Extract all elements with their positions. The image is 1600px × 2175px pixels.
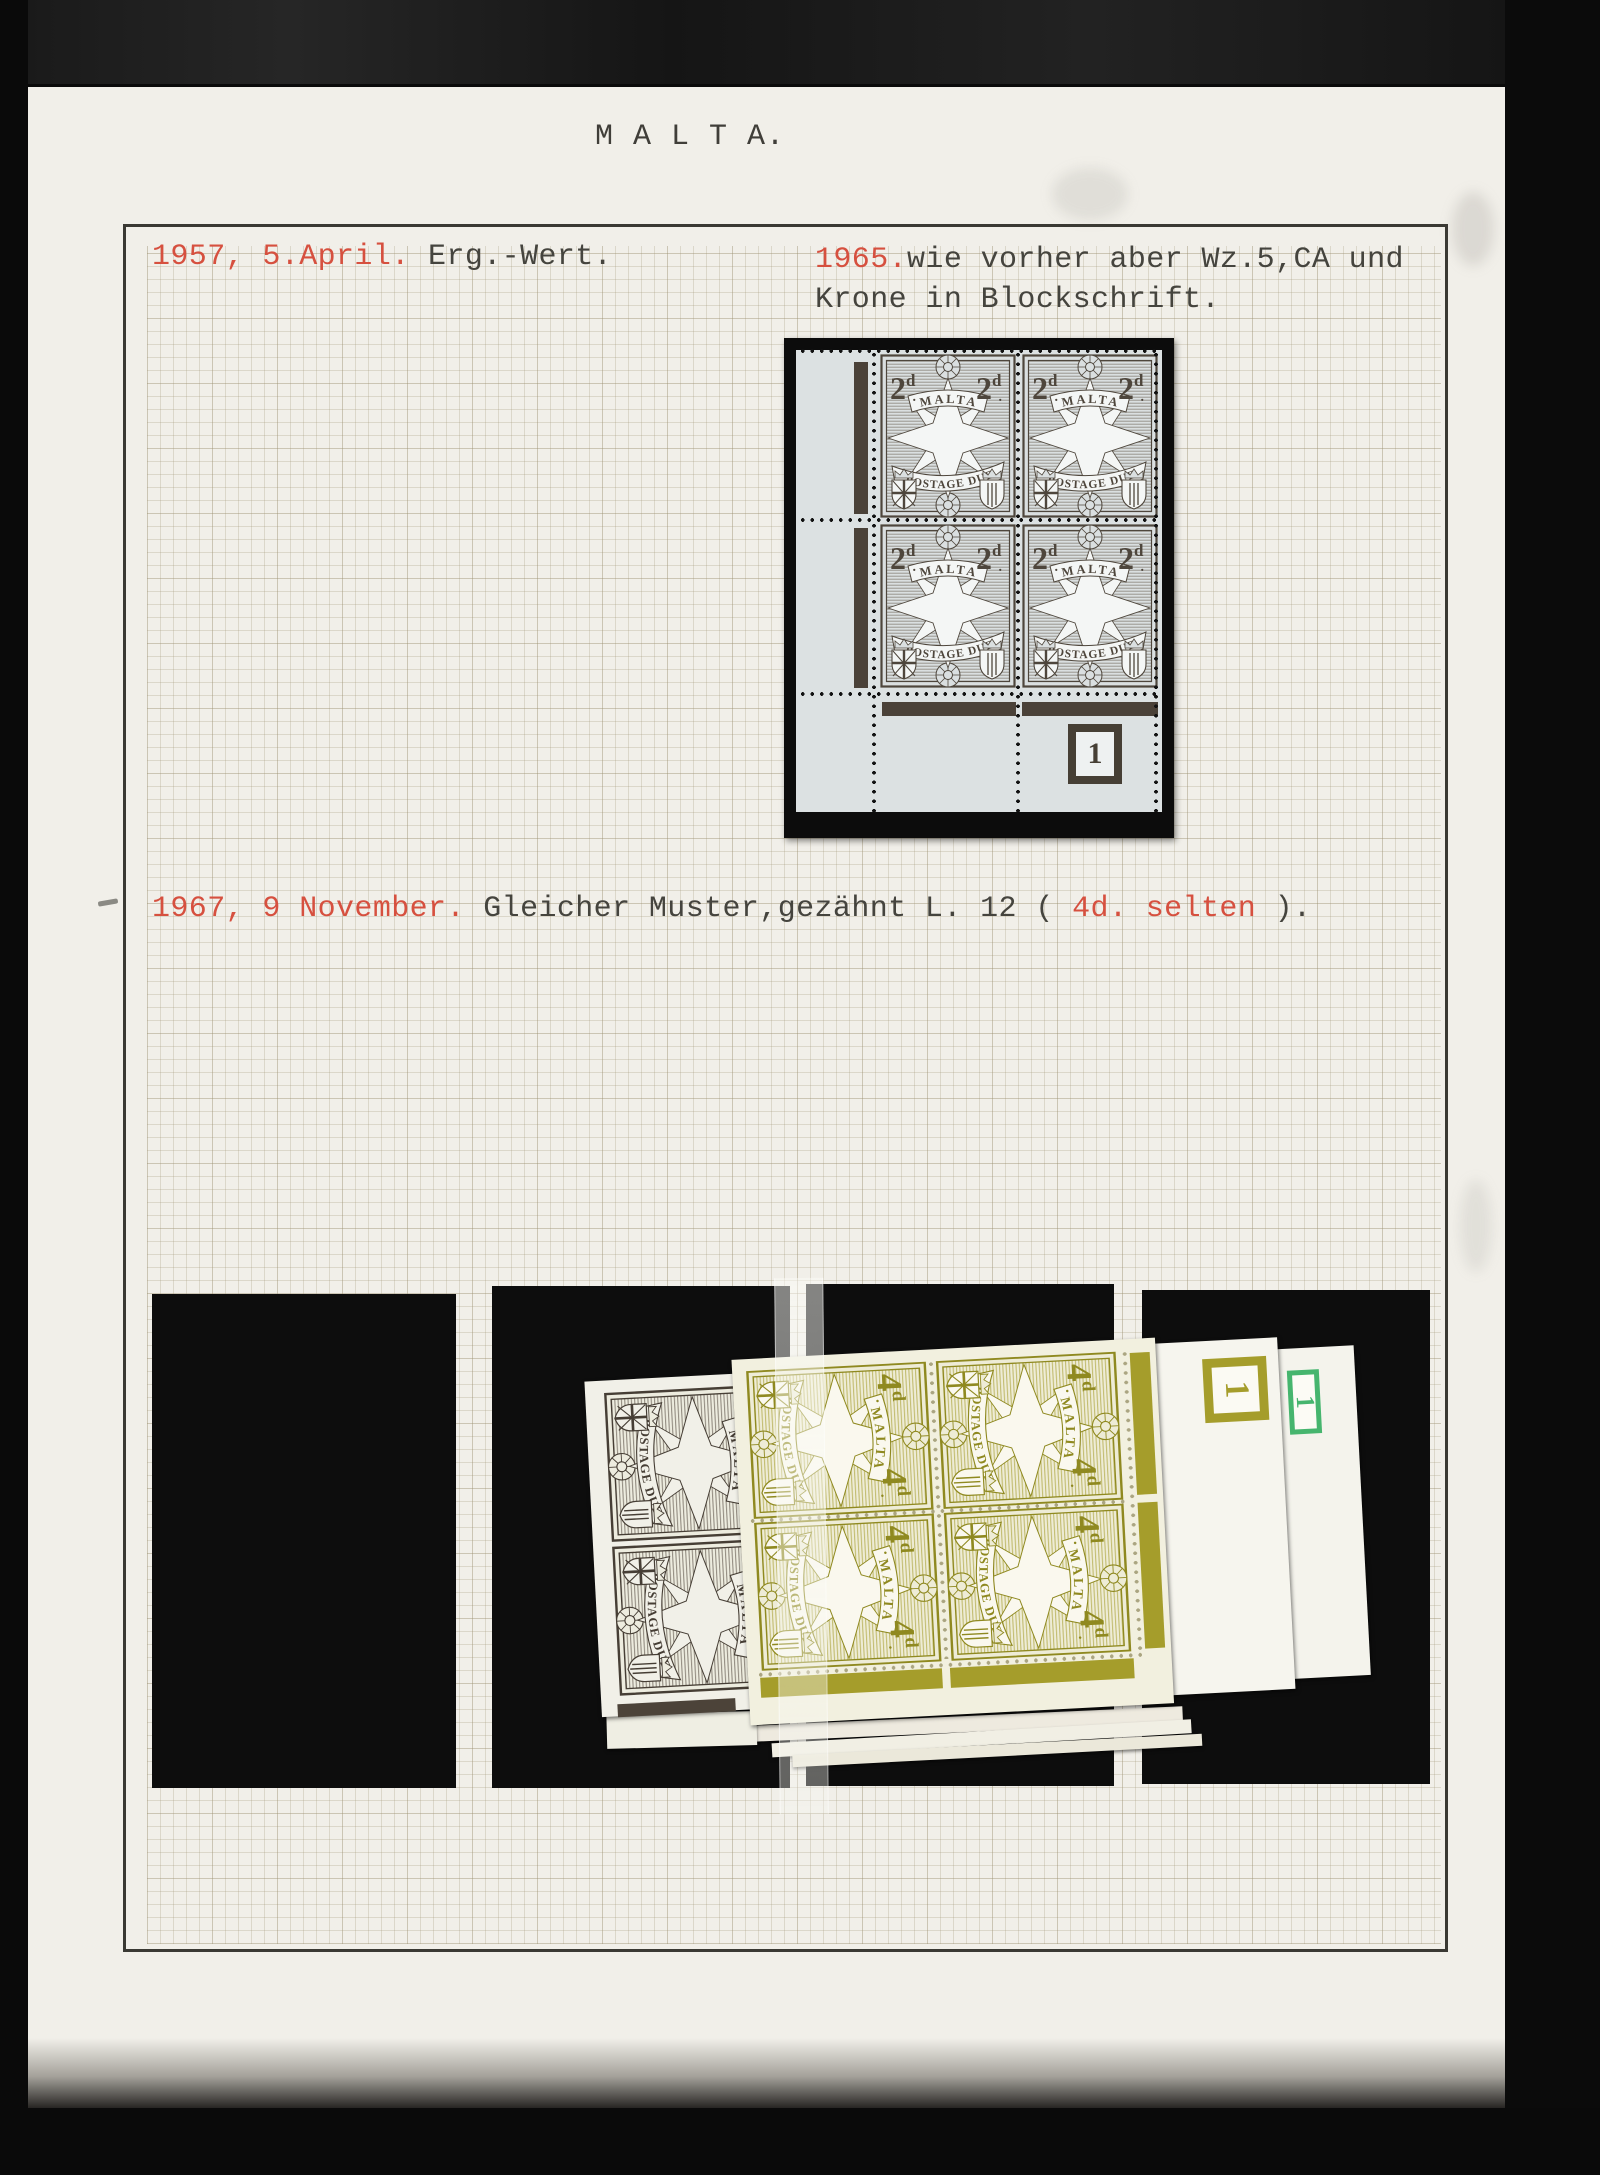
stamp-2d: MALTA POSTAGE DUE 2d.2d. [880, 524, 1016, 688]
note-1957-text: Erg.-Wert. [410, 240, 612, 274]
note-1965-line1: 1965.wie vorher aber Wz.5,CA und [815, 240, 1404, 280]
stamp-2d: MALTA POSTAGE DUE 2d.2d. [1022, 354, 1158, 518]
plate-number: 1 [1088, 737, 1103, 771]
scan-border-right [1505, 0, 1600, 2175]
scan-border-bottom [0, 2108, 1600, 2175]
selvedge-bar-left-lower [854, 528, 868, 688]
svg-text:2d.: 2d. [1118, 540, 1144, 576]
perforation-column [1153, 350, 1159, 812]
svg-text:4d.: 4d. [877, 1524, 917, 1555]
svg-text:4d.: 4d. [1072, 1609, 1112, 1640]
perforation-row [798, 691, 1160, 697]
plate-number: 1 [1289, 1395, 1320, 1410]
page-title: M A L T A. [560, 120, 820, 154]
svg-text:4d.: 4d. [874, 1467, 914, 1498]
svg-text:2d.: 2d. [976, 540, 1002, 576]
svg-text:4d.: 4d. [1067, 1515, 1107, 1546]
svg-text:4d.: 4d. [1059, 1363, 1099, 1394]
note-1967-rarity: 4d. selten [1072, 892, 1256, 926]
note-1957-date: 1957, 5.April. [152, 240, 410, 274]
scan-border-left [0, 0, 28, 2175]
note-1965-line2: Krone in Blockschrift. [815, 280, 1404, 320]
perforation-row [798, 517, 1160, 523]
stamp-pile: 1 1 MALTA POSTAGE DUE [583, 1313, 1385, 1793]
selvedge-bar-bottom-2 [1022, 702, 1158, 716]
stamp-4d-sideways: MALTA POSTAGE DUE 4d.4d. [742, 1361, 937, 1519]
note-1967: 1967, 9 November. Gleicher Muster,gezähn… [152, 892, 1311, 926]
svg-text:2d.: 2d. [1032, 370, 1058, 406]
svg-text:4d.: 4d. [869, 1373, 909, 1404]
stamp-2d: MALTA POSTAGE DUE 2d.2d. [880, 354, 1016, 518]
svg-text:4d.: 4d. [882, 1619, 922, 1650]
stamp-4d-sideways: MALTA POSTAGE DUE 4d.4d. [932, 1352, 1127, 1510]
stamp-sheet-2d-block: MALTA POSTAGE DUE 2d.2d. MALTA POSTAGE D… [796, 350, 1162, 812]
scanned-album-page: M A L T A. 1957, 5.April. Erg.-Wert. 196… [0, 0, 1600, 2175]
note-1965: 1965.wie vorher aber Wz.5,CA undKrone in… [815, 240, 1404, 320]
svg-text:2d.: 2d. [976, 370, 1002, 406]
svg-text:2d.: 2d. [1032, 540, 1058, 576]
perforation-column [1015, 350, 1021, 812]
note-1967-date: 1967, 9 November. [152, 892, 465, 926]
scan-shadow-bottom [28, 2038, 1505, 2108]
svg-text:2d.: 2d. [1118, 370, 1144, 406]
note-1965-year: 1965. [815, 243, 907, 277]
svg-text:4d.: 4d. [1064, 1457, 1104, 1488]
perforation-row [798, 348, 1160, 354]
note-1957: 1957, 5.April. Erg.-Wert. [152, 240, 612, 274]
perforation-column [871, 350, 877, 812]
selvedge-bar-bottom-1 [882, 702, 1016, 716]
plate-number: 1 [1216, 1380, 1255, 1399]
plate-number-box-olive: 1 [1202, 1356, 1269, 1423]
stamp-4d-sideways: MALTA POSTAGE DUE 4d.4d. [940, 1503, 1135, 1661]
selvedge-bar-left-upper [854, 362, 868, 514]
stamp-2d: MALTA POSTAGE DUE 2d.2d. [1022, 524, 1158, 688]
scan-border-top [0, 0, 1600, 87]
scan-smudge [1052, 168, 1128, 220]
glassine-strip [774, 1278, 829, 1814]
scan-smudge [1452, 192, 1494, 266]
plate-number-box: 1 [1068, 724, 1122, 784]
plate-number-box-green: 1 [1287, 1369, 1322, 1435]
scan-smudge [1460, 1180, 1492, 1272]
svg-text:2d.: 2d. [890, 540, 916, 576]
black-mount-1 [152, 1294, 456, 1788]
svg-text:2d.: 2d. [890, 370, 916, 406]
